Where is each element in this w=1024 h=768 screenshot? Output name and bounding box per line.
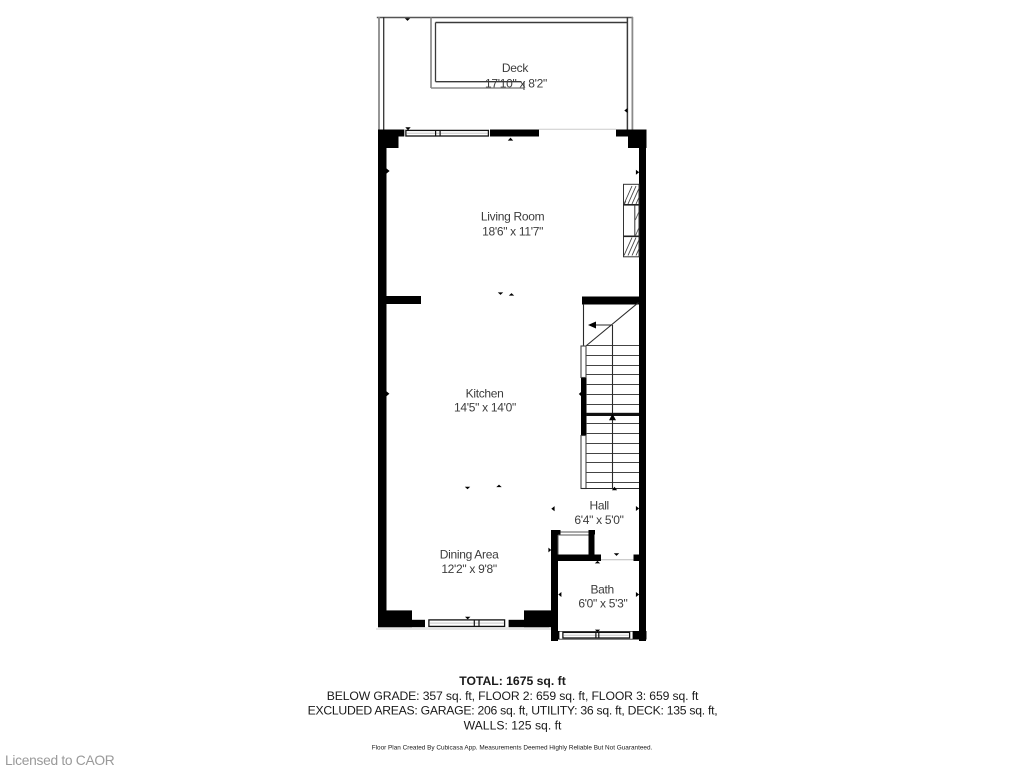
svg-text:BELOW GRADE: 357 sq. ft, FLOOR: BELOW GRADE: 357 sq. ft, FLOOR 2: 659 sq… — [327, 689, 699, 703]
svg-text:Kitchen: Kitchen — [466, 387, 504, 401]
svg-text:12'2" x 9'8": 12'2" x 9'8" — [441, 562, 497, 576]
svg-text:Dining Area: Dining Area — [440, 547, 499, 561]
svg-text:Living Room: Living Room — [481, 210, 545, 224]
svg-text:Licensed to CAOR: Licensed to CAOR — [5, 753, 115, 768]
svg-text:18'6" x 11'7": 18'6" x 11'7" — [482, 224, 543, 238]
svg-text:Deck: Deck — [502, 61, 529, 75]
svg-text:Hall: Hall — [589, 499, 608, 513]
svg-text:17'10" x 8'2": 17'10" x 8'2" — [485, 77, 547, 91]
svg-text:TOTAL: 1675 sq. ft: TOTAL: 1675 sq. ft — [459, 674, 566, 688]
svg-text:Floor Plan Created By Cubicasa: Floor Plan Created By Cubicasa App. Meas… — [372, 745, 653, 752]
svg-text:EXCLUDED AREAS: GARAGE: 206 sq: EXCLUDED AREAS: GARAGE: 206 sq. ft, UTIL… — [308, 703, 718, 717]
svg-text:Bath: Bath — [590, 582, 614, 596]
svg-text:14'5" x 14'0": 14'5" x 14'0" — [454, 401, 516, 415]
svg-text:6'4" x 5'0": 6'4" x 5'0" — [574, 513, 623, 527]
svg-text:6'0" x 5'3": 6'0" x 5'3" — [578, 596, 627, 610]
svg-text:WALLS: 125 sq. ft: WALLS: 125 sq. ft — [464, 718, 562, 732]
